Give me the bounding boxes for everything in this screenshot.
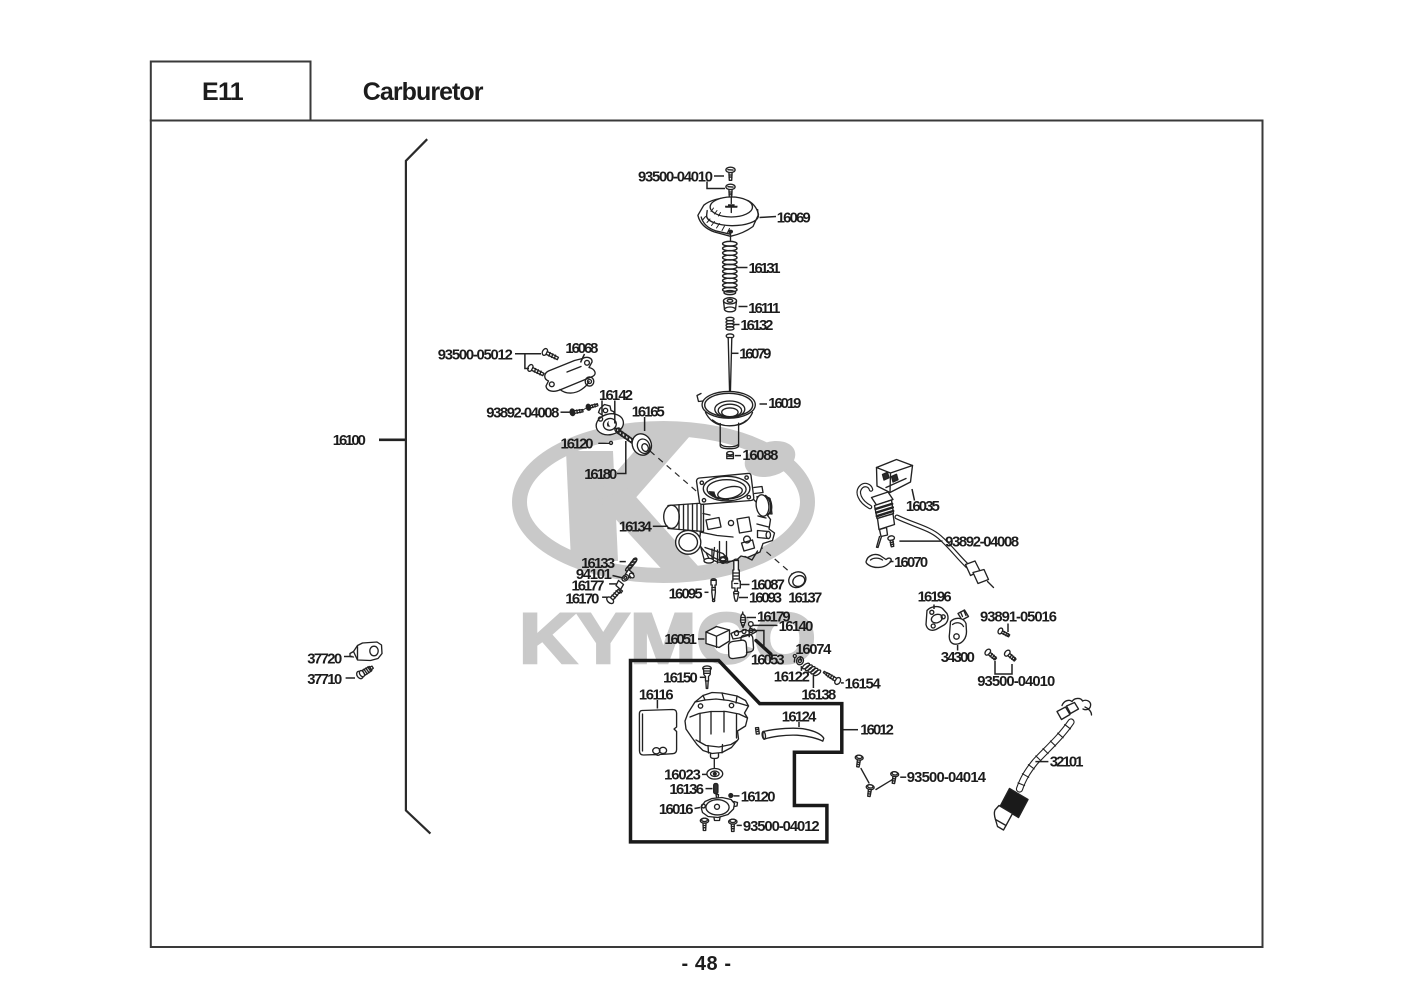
svg-text:16095: 16095 bbox=[669, 587, 703, 603]
svg-text:93500-04010: 93500-04010 bbox=[638, 169, 713, 185]
svg-text:16079: 16079 bbox=[739, 347, 771, 363]
svg-text:16180: 16180 bbox=[584, 467, 617, 483]
svg-text:16035: 16035 bbox=[906, 499, 940, 515]
svg-text:16016: 16016 bbox=[659, 802, 694, 818]
svg-text:16019: 16019 bbox=[768, 396, 801, 412]
svg-text:16012: 16012 bbox=[860, 722, 894, 738]
svg-text:32101: 32101 bbox=[1050, 755, 1084, 771]
svg-text:93500-05012: 93500-05012 bbox=[438, 347, 513, 363]
svg-text:93500-04012: 93500-04012 bbox=[743, 819, 820, 835]
svg-text:34300: 34300 bbox=[941, 650, 975, 666]
svg-text:16132: 16132 bbox=[740, 318, 773, 334]
svg-text:Carburetor: Carburetor bbox=[363, 78, 484, 106]
svg-text:16070: 16070 bbox=[894, 555, 928, 571]
svg-text:37720: 37720 bbox=[307, 651, 342, 667]
svg-text:16122: 16122 bbox=[774, 670, 810, 686]
svg-text:16142: 16142 bbox=[599, 388, 633, 404]
svg-text:37710: 37710 bbox=[307, 672, 342, 688]
svg-text:16137: 16137 bbox=[788, 591, 822, 607]
svg-text:16053: 16053 bbox=[751, 653, 785, 669]
svg-text:16120: 16120 bbox=[561, 436, 594, 452]
svg-text:93500-04014: 93500-04014 bbox=[907, 770, 987, 786]
svg-text:16068: 16068 bbox=[565, 341, 598, 357]
svg-text:16150: 16150 bbox=[663, 671, 698, 687]
svg-text:16154: 16154 bbox=[845, 677, 882, 693]
svg-text:93500-04010: 93500-04010 bbox=[977, 674, 1055, 690]
svg-text:16136: 16136 bbox=[669, 782, 704, 798]
svg-text:16140: 16140 bbox=[779, 619, 814, 635]
svg-text:16023: 16023 bbox=[664, 767, 701, 783]
svg-text:16051: 16051 bbox=[664, 632, 697, 648]
svg-text:E11: E11 bbox=[202, 78, 244, 106]
svg-text:16120: 16120 bbox=[741, 789, 776, 805]
svg-text:- 48 -: - 48 - bbox=[682, 953, 732, 975]
svg-text:16100: 16100 bbox=[333, 433, 366, 449]
svg-text:16093: 16093 bbox=[749, 591, 782, 607]
svg-text:16088: 16088 bbox=[742, 448, 778, 464]
svg-text:16170: 16170 bbox=[565, 592, 599, 608]
svg-text:16069: 16069 bbox=[777, 211, 811, 227]
svg-text:16124: 16124 bbox=[782, 710, 817, 726]
svg-text:16196: 16196 bbox=[918, 589, 952, 605]
svg-text:16134: 16134 bbox=[619, 520, 653, 536]
svg-text:16116: 16116 bbox=[639, 688, 674, 704]
svg-text:16131: 16131 bbox=[749, 261, 781, 277]
svg-text:93892-04008: 93892-04008 bbox=[486, 406, 559, 422]
svg-text:16138: 16138 bbox=[801, 688, 836, 704]
svg-text:16074: 16074 bbox=[795, 642, 832, 658]
svg-text:16165: 16165 bbox=[632, 405, 665, 421]
svg-text:16111: 16111 bbox=[748, 301, 780, 317]
svg-text:93891-05016: 93891-05016 bbox=[980, 609, 1057, 625]
svg-text:93892-04008: 93892-04008 bbox=[945, 535, 1019, 551]
